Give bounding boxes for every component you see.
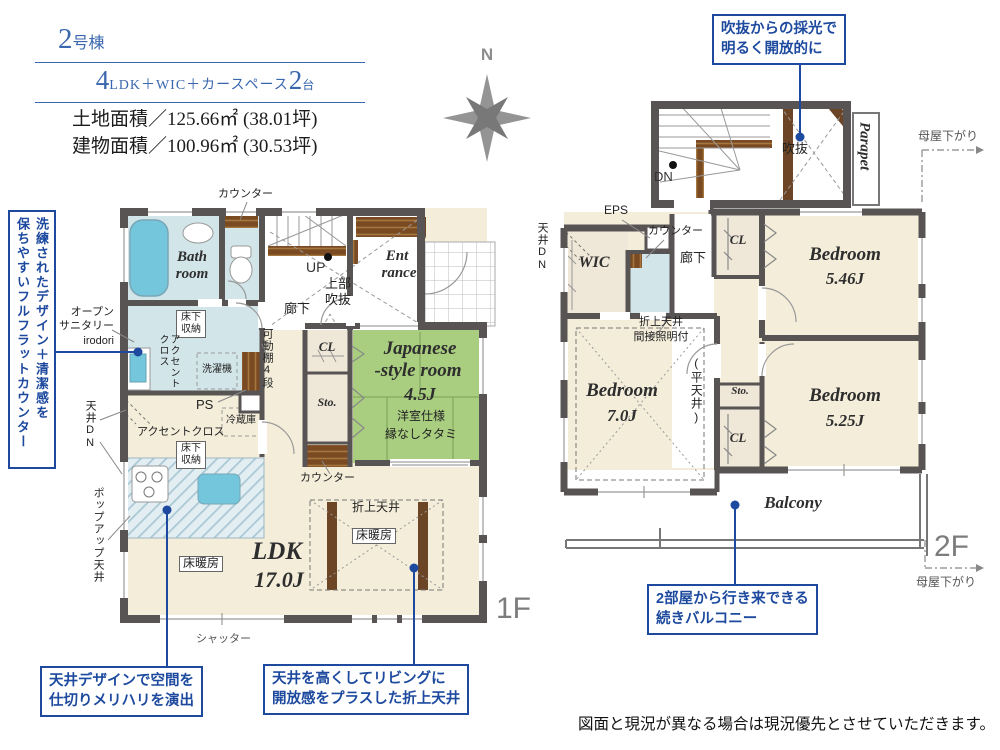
f2-counter-label: カウンター (648, 225, 703, 237)
f1-underfloor-storage-1: 床下収納 (176, 310, 206, 338)
f2-void-label: 吹抜 (782, 142, 808, 156)
f2-moya-sagari-bottom: 母屋下がり (916, 576, 976, 589)
floor-plan-page: 2号棟 4LDK＋WIC＋カースペース2台 土地面積／125.66㎡ (38.0… (0, 0, 1000, 750)
f1-accent-cloth-v1: アクセント (168, 334, 179, 424)
callout-ceiling-zone-line2: 仕切りメリハリを演出 (49, 691, 194, 711)
f2-closet-bottom-label: CL (730, 431, 747, 445)
f1-ldk-size: 17.0J (254, 568, 304, 592)
f2-bedroom70-label: Bedroom (586, 381, 658, 402)
f2-storage-label: Sto. (731, 385, 748, 397)
layout-car-count: 2 (289, 65, 303, 95)
f1-washer-label: 洗濯機 (202, 364, 232, 375)
f2-hallway-label: 廊下 (680, 251, 706, 265)
f2-floor-tag: 2F (934, 530, 969, 563)
f1-underfloor-storage-2: 床下収納 (176, 441, 206, 469)
layout-summary: 4LDK＋WIC＋カースペース2台 (96, 66, 315, 96)
f2-bedroom70-size: 7.0J (607, 407, 637, 426)
callout-balcony-link: 2部屋から行き来できる 続きバルコニー (647, 584, 818, 635)
layout-ldk-count: 4 (96, 65, 110, 95)
f1-upper-void-label-2: 吹抜 (325, 293, 351, 307)
building-number-value: 2 (58, 23, 73, 55)
callout-void-light-line2: 明るく開放的に (721, 39, 837, 59)
disclaimer-text: 図面と現況が異なる場合は現況優先とさせていただきます。 (455, 716, 995, 733)
compass-north-label: N (481, 46, 493, 65)
f1-hallway-label: 廊下 (284, 302, 310, 316)
f1-bathroom-label-2: room (176, 266, 209, 283)
f1-accent-cloth-vertical: アクセント クロス (157, 334, 179, 424)
f1-counter-label-top: カウンター (218, 188, 273, 200)
f1-folded-ceiling-label: 折上天井 (352, 501, 400, 514)
building-area: 建物面積／100.96㎡ (30.53坪) (72, 137, 317, 158)
f2-bedroom525-label: Bedroom (809, 386, 881, 407)
f2-folded-ceiling-note-2: 間接照明付 (634, 331, 689, 343)
f1-storage-label: Sto. (317, 396, 336, 409)
f2-closet-top-label: CL (730, 233, 747, 247)
f1-ps-label: PS (196, 398, 213, 412)
f1-floor-heating-2: 床暖房 (352, 528, 396, 544)
f1-closet-label: CL (319, 340, 336, 354)
f1-upper-void-label-1: 上部 (325, 277, 351, 291)
f1-counter-label-mid: カウンター (300, 472, 355, 484)
f1-accent-cloth-h-label: アクセントクロス (137, 426, 224, 438)
f2-bedroom546-label: Bedroom (809, 245, 881, 266)
building-number-suffix: 号棟 (73, 35, 105, 52)
f1-japanese-room-label-2: -style room (374, 361, 461, 382)
compass-rose (443, 74, 531, 162)
f1-japanese-room-size: 4.5J (404, 385, 436, 405)
f2-moya-sagari-top: 母屋下がり (918, 130, 978, 143)
f1-entrance-label-2: rance (382, 265, 417, 282)
f1-entrance-label-1: Ent (386, 248, 409, 265)
f1-floor-heating-1: 床暖房 (179, 556, 223, 572)
f1-floor-tag: 1F (496, 592, 531, 625)
f1-fridge-label: 冷蔵庫 (226, 415, 256, 426)
header-rule-bottom (35, 102, 365, 103)
f1-stairs-up-label: UP (306, 260, 325, 275)
building-number: 2号棟 (58, 24, 105, 56)
callout-void-light-line1: 吹抜からの採光で (721, 19, 837, 39)
f2-balcony-label: Balcony (764, 494, 822, 513)
f1-japanese-room-note-2: 縁なしタタミ (385, 428, 457, 441)
layout-text: LDK＋WIC＋カースペース (109, 78, 289, 93)
f1-bathroom-label-1: Bath (177, 249, 207, 266)
f2-eps-label: EPS (604, 204, 628, 217)
f1-open-sanitary-2: サニタリー (58, 319, 114, 333)
f2-bedroom525-size: 5.25J (826, 412, 864, 431)
f1-open-sanitary-3: irodori (58, 334, 114, 348)
f1-popup-ceiling-label: ポップアップ天井 (92, 487, 104, 615)
callout-flat-counter-line1: 洗練されたデザイン＋清潔感を (32, 217, 51, 462)
f2-folded-ceiling-note-1: 折上天井 (639, 316, 683, 328)
f1-ldk-label: LDK (252, 538, 302, 566)
f1-open-sanitary-label: オープン サニタリー irodori (58, 305, 114, 348)
f2-wic-label: WIC (578, 254, 609, 272)
callout-balcony-link-line2: 続きバルコニー (656, 609, 809, 629)
f1-accent-cloth-v2: クロス (157, 334, 168, 424)
callout-void-light: 吹抜からの採光で 明るく開放的に (712, 14, 846, 65)
callout-ceiling-zone: 天井デザインで空間を 仕切りメリハリを演出 (40, 666, 203, 717)
f2-bedroom546-size: 5.46J (826, 270, 864, 289)
header-rule-top (35, 62, 365, 63)
f2-stairs-dn-label: DN (654, 170, 673, 184)
callout-balcony-link-line1: 2部屋から行き来できる (656, 589, 809, 609)
land-area: 土地面積／125.66㎡ (38.01坪) (72, 110, 317, 131)
f1-japanese-room-label-1: Japanese (384, 339, 457, 360)
f1-japanese-room-note-1: 洋室仕様 (397, 410, 445, 423)
callout-folded-ceiling: 天井を高くしてリビングに 開放感をプラスした折上天井 (263, 664, 469, 715)
callout-folded-ceiling-line1: 天井を高くしてリビングに (272, 669, 460, 689)
callout-folded-ceiling-line2: 開放感をプラスした折上天井 (272, 689, 460, 709)
f1-shutter-label: シャッター (196, 633, 251, 645)
f2-parapet-label: Parapet (856, 122, 873, 202)
f2-ceiling-dn-label: 天井DN (536, 222, 548, 282)
f1-open-sanitary-1: オープン (58, 305, 114, 319)
callout-ceiling-zone-line1: 天井デザインで空間を (49, 671, 194, 691)
f1-ceiling-dn-label: 天井DN (84, 400, 96, 460)
callout-flat-counter: 洗練されたデザイン＋清潔感を 保ちやすいフルフラットカウンター (8, 210, 56, 469)
layout-tail: 台 (302, 78, 314, 92)
callout-flat-counter-line2: 保ちやすいフルフラットカウンター (13, 217, 32, 462)
f1-movable-shelf-label: 可動棚4段 (261, 328, 273, 404)
f2-flat-ceiling-label: (平天井) (689, 356, 702, 428)
